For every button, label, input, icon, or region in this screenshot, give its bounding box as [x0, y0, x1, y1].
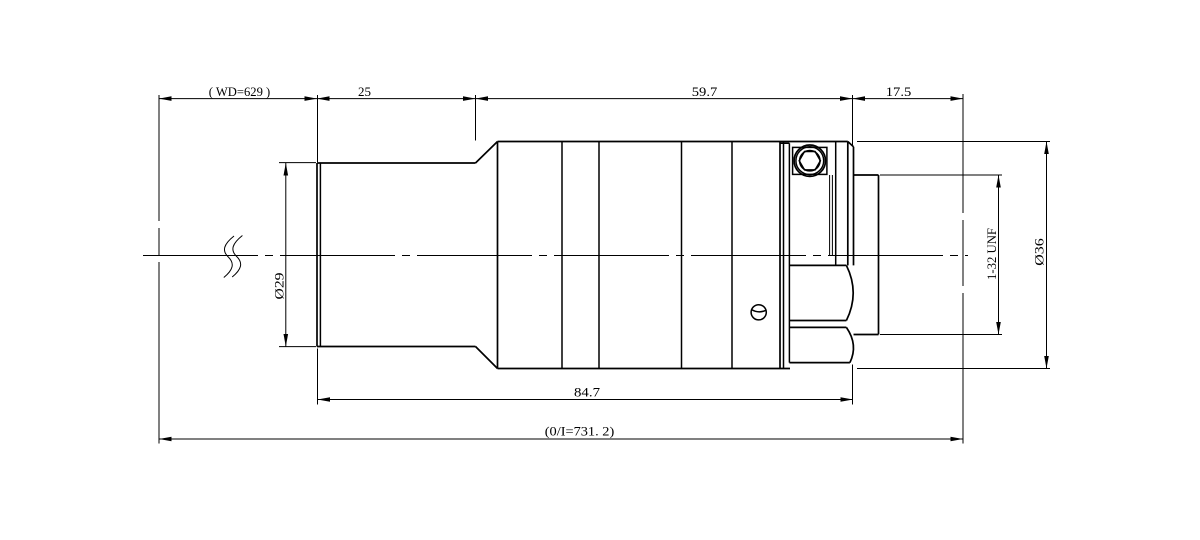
svg-text:(0/I=731. 2): (0/I=731. 2): [545, 424, 615, 439]
svg-text:59.7: 59.7: [692, 84, 718, 99]
svg-text:17.5: 17.5: [886, 84, 912, 99]
svg-text:Ø29: Ø29: [272, 273, 287, 300]
svg-text:1-32 UNF: 1-32 UNF: [984, 228, 999, 280]
svg-text:Ø36: Ø36: [1032, 238, 1047, 266]
svg-text:25: 25: [358, 84, 371, 99]
svg-text:( WD=629 ): ( WD=629 ): [209, 84, 271, 99]
svg-text:84.7: 84.7: [574, 385, 601, 400]
